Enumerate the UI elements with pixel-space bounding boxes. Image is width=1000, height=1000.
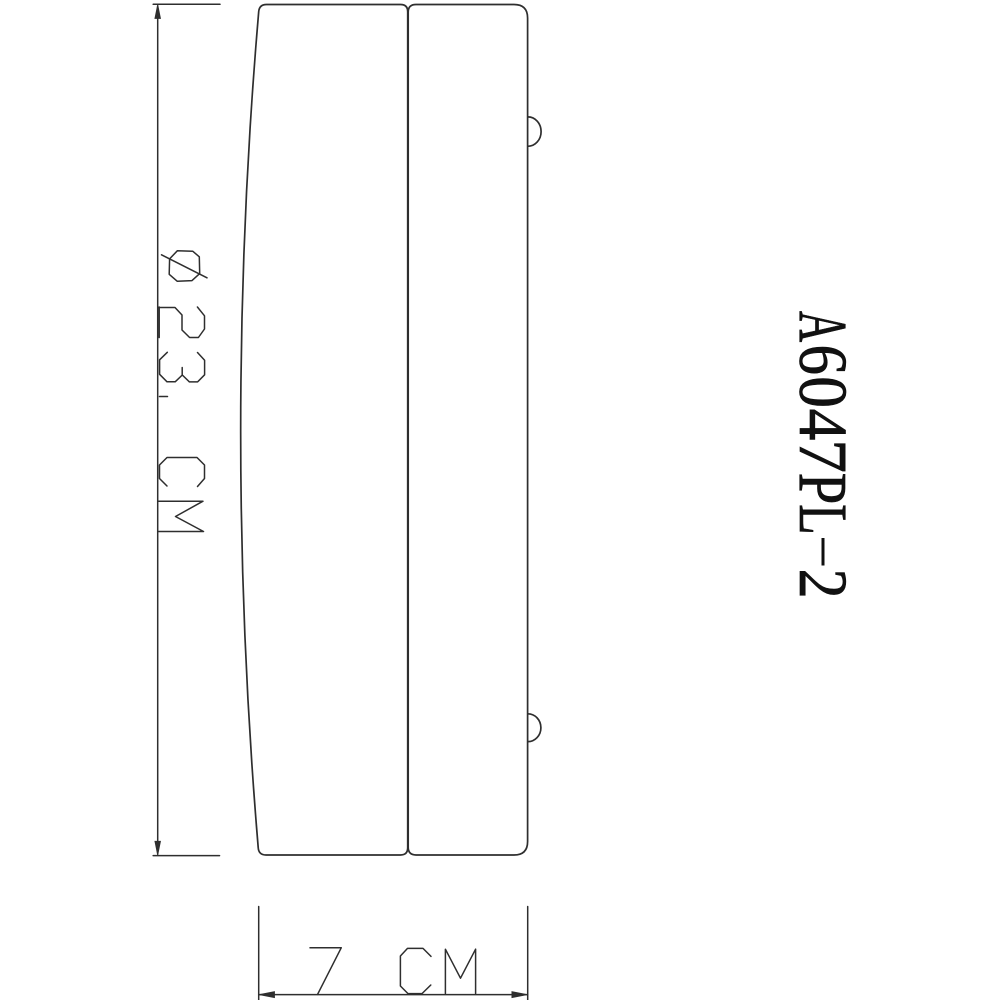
svg-text:0: 0: [784, 376, 860, 408]
svg-text:L: L: [784, 504, 861, 535]
svg-text:P: P: [785, 473, 861, 505]
svg-text:6: 6: [784, 344, 860, 375]
svg-text:4: 4: [784, 409, 860, 441]
svg-text:A: A: [784, 311, 859, 343]
svg-text:7: 7: [785, 439, 862, 473]
svg-text:2: 2: [785, 569, 862, 599]
